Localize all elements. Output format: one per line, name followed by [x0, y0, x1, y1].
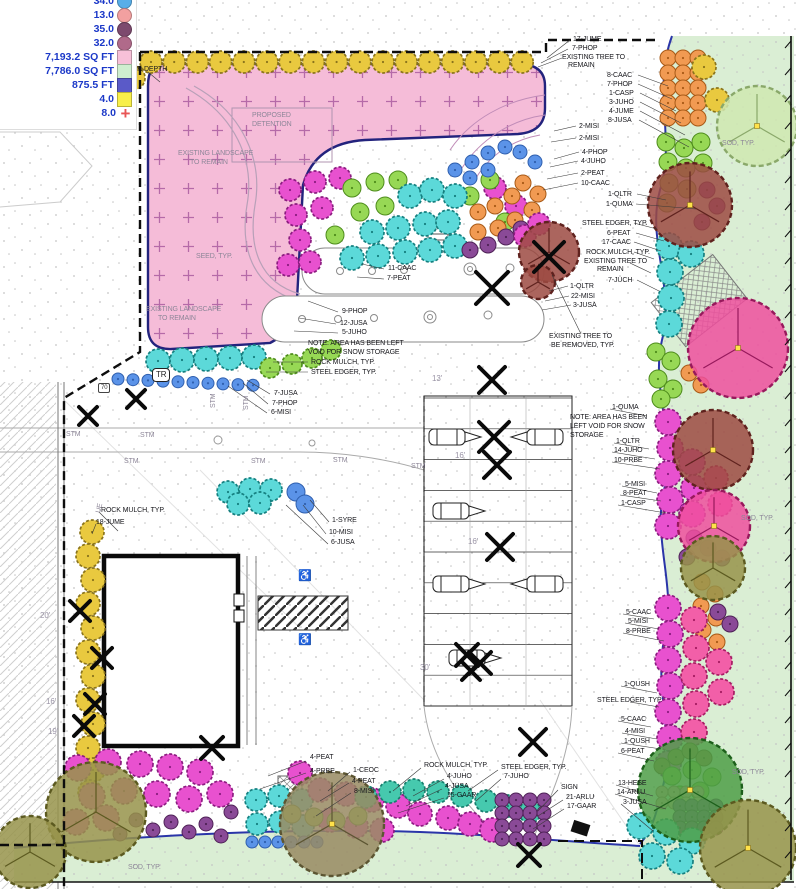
legend-value: 8.0: [101, 107, 116, 119]
legend-value: 32.0: [94, 37, 114, 49]
legend-item: 35.0: [0, 22, 136, 36]
legend-item: 7,786.0 SQ FT: [0, 64, 136, 78]
legend-item: 13.0: [0, 8, 136, 22]
legend-item: 8.0+: [0, 106, 136, 120]
legend-panel: 34.013.035.032.07,193.2 SQ FT7,786.0 SQ …: [0, 0, 137, 130]
site-plan-drawing: [0, 0, 796, 889]
building-footprint: [104, 556, 238, 746]
crosswalk-hatch: [258, 596, 348, 630]
legend-value: 7,786.0 SQ FT: [45, 65, 114, 77]
legend-item: 875.5 FT: [0, 78, 136, 92]
legend-item: 4.0: [0, 92, 136, 106]
legend-item: 7,193.2 SQ FT: [0, 50, 136, 64]
plant-symbol-swatch: [117, 22, 132, 37]
plant-symbol-swatch: [117, 36, 132, 51]
legend-value: 34.0: [94, 0, 114, 7]
area-swatch: [117, 50, 132, 65]
legend-value: 7,193.2 SQ FT: [45, 51, 114, 63]
plant-symbol-swatch: [117, 8, 132, 23]
legend-value: 35.0: [94, 23, 114, 35]
area-swatch: [117, 64, 132, 79]
length-swatch: [117, 78, 132, 93]
legend-value: 875.5 FT: [72, 79, 114, 91]
legend-item: 32.0: [0, 36, 136, 50]
legend-item: 34.0: [0, 0, 136, 8]
legend-value: 4.0: [99, 93, 114, 105]
landscape-plan-canvas: 100-YR DEPTHPROPOSEDDETENTIONEXISTING LA…: [0, 0, 796, 889]
legend-value: 13.0: [94, 9, 114, 21]
plus-marker-icon: +: [119, 107, 132, 120]
